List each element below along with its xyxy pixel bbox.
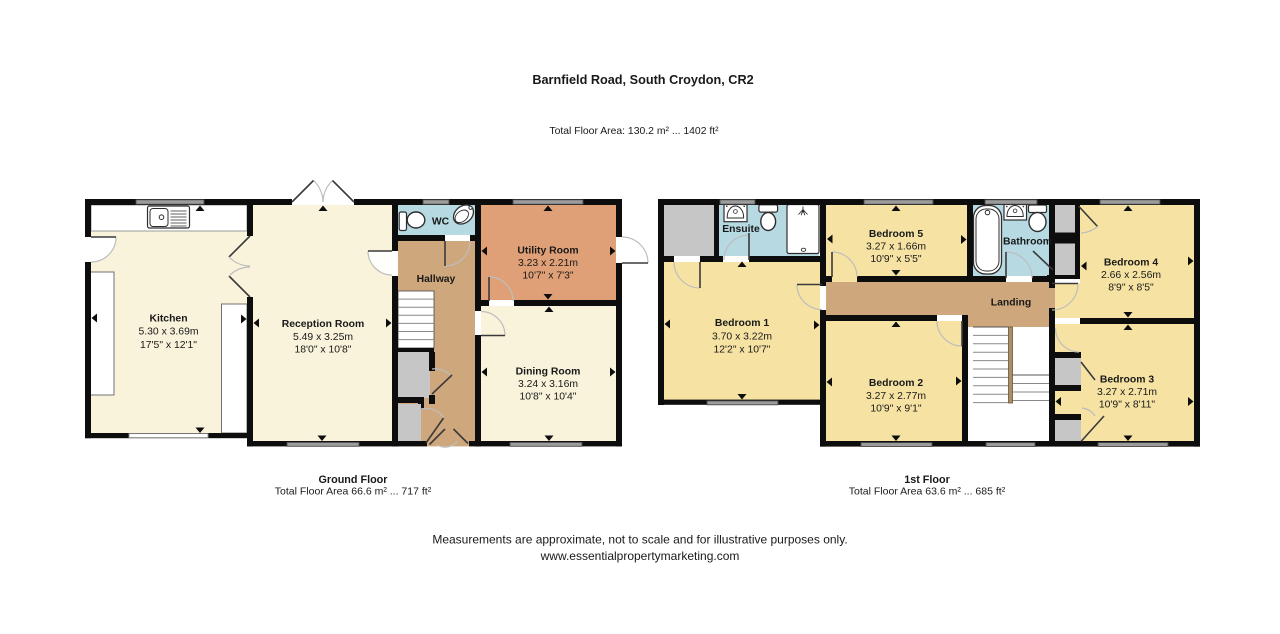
svg-text:Bathroom: Bathroom — [1003, 236, 1052, 247]
svg-text:Total Floor Area 66.6 m² ... 7: Total Floor Area 66.6 m² ... 717 ft² — [275, 486, 432, 498]
svg-text:www.essentialpropertymarketing: www.essentialpropertymarketing.com — [540, 549, 740, 563]
svg-text:10'8" x 10'4": 10'8" x 10'4" — [520, 392, 577, 403]
svg-text:Measurements are approximate,: Measurements are approximate, not to sca… — [432, 533, 847, 547]
svg-text:3.27 x 1.66m: 3.27 x 1.66m — [866, 242, 926, 253]
svg-text:Total Floor Area 63.6 m² ... 6: Total Floor Area 63.6 m² ... 685 ft² — [849, 486, 1006, 498]
svg-text:10'9" x 8'11": 10'9" x 8'11" — [1099, 399, 1156, 410]
svg-text:1st Floor: 1st Floor — [904, 474, 950, 486]
svg-text:3.70 x 3.22m: 3.70 x 3.22m — [712, 331, 772, 342]
svg-text:Utility Room: Utility Room — [517, 245, 578, 256]
svg-text:5.30 x 3.69m: 5.30 x 3.69m — [138, 327, 198, 338]
svg-text:10'9" x 9'1": 10'9" x 9'1" — [870, 403, 922, 414]
svg-text:Bedroom 5: Bedroom 5 — [869, 229, 923, 240]
svg-text:Reception Room: Reception Room — [282, 319, 365, 330]
svg-text:17'5" x 12'1": 17'5" x 12'1" — [140, 340, 197, 351]
svg-text:3.27 x 2.77m: 3.27 x 2.77m — [866, 391, 926, 402]
svg-text:Hallway: Hallway — [417, 274, 456, 285]
svg-text:10'9" x 5'5": 10'9" x 5'5" — [870, 254, 922, 265]
svg-text:Dining Room: Dining Room — [516, 367, 581, 378]
svg-text:Ensuite: Ensuite — [722, 224, 760, 235]
svg-text:Bedroom 3: Bedroom 3 — [1100, 374, 1154, 385]
svg-text:Ground Floor: Ground Floor — [319, 474, 389, 486]
svg-text:3.24 x 3.16m: 3.24 x 3.16m — [518, 379, 578, 390]
svg-text:Total Floor Area: 130.2 m² ...: Total Floor Area: 130.2 m² ... 1402 ft² — [549, 126, 719, 137]
svg-text:3.23 x 2.21m: 3.23 x 2.21m — [518, 258, 578, 269]
svg-text:8'9" x 8'5": 8'9" x 8'5" — [1108, 282, 1154, 293]
svg-text:Landing: Landing — [991, 298, 1031, 309]
svg-text:2.66 x 2.56m: 2.66 x 2.56m — [1101, 270, 1161, 281]
svg-text:12'2" x 10'7": 12'2" x 10'7" — [714, 345, 771, 356]
svg-text:Barnfield Road, South Croydon,: Barnfield Road, South Croydon, CR2 — [532, 73, 753, 87]
svg-text:Kitchen: Kitchen — [149, 314, 187, 325]
svg-text:Bedroom 4: Bedroom 4 — [1104, 258, 1158, 269]
svg-text:WC: WC — [432, 217, 450, 228]
svg-text:5.49 x 3.25m: 5.49 x 3.25m — [293, 332, 353, 343]
svg-text:18'0" x 10'8": 18'0" x 10'8" — [295, 344, 352, 355]
svg-text:Bedroom 1: Bedroom 1 — [715, 318, 769, 329]
svg-text:3.27 x 2.71m: 3.27 x 2.71m — [1097, 387, 1157, 398]
svg-text:Bedroom 2: Bedroom 2 — [869, 378, 923, 389]
svg-text:10'7" x 7'3": 10'7" x 7'3" — [522, 271, 574, 282]
